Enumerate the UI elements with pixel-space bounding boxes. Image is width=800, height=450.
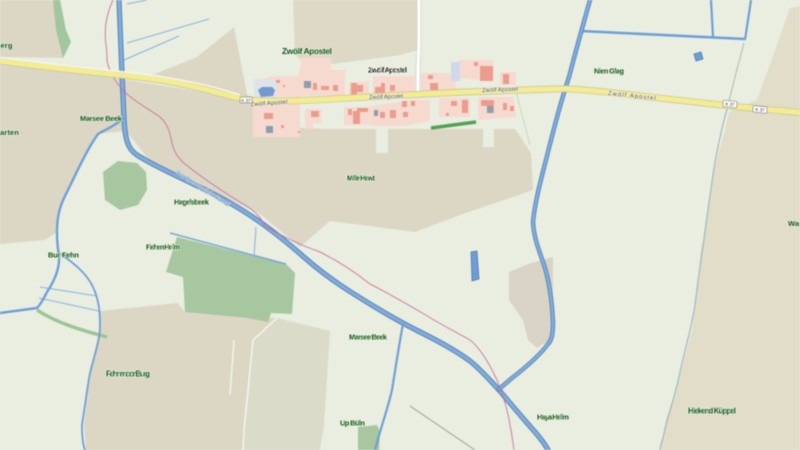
- svg-text:K 37: K 37: [725, 101, 735, 107]
- svg-text:Wass: Wass: [788, 219, 800, 228]
- svg-text:Nien Glag: Nien Glag: [594, 67, 624, 76]
- svg-text:Garten: Garten: [0, 128, 19, 137]
- svg-text:Mille Hewt: Mille Hewt: [347, 174, 376, 183]
- svg-text:K 37: K 37: [755, 107, 765, 113]
- svg-text:Zwölf Apostel: Zwölf Apostel: [369, 94, 403, 101]
- svg-text:Marsee Beek: Marsee Beek: [349, 333, 388, 342]
- svg-text:Zwölf Apostel: Zwölf Apostel: [282, 46, 332, 56]
- svg-text:Zwölf Apostel: Zwölf Apostel: [368, 66, 407, 75]
- svg-text:Hagelsbeek: Hagelsbeek: [174, 198, 210, 207]
- svg-text:Fehnmoor Burg: Fehnmoor Burg: [106, 370, 150, 379]
- svg-text:Zwölf Apostel: Zwölf Apostel: [482, 87, 518, 94]
- svg-text:Fiehen Hellm: Fiehen Hellm: [146, 243, 180, 252]
- svg-text:Hiekend Küppel: Hiekend Küppel: [688, 407, 736, 416]
- svg-text:Marsee Beek: Marsee Beek: [80, 114, 123, 123]
- svg-text:Haya Hellm: Haya Hellm: [537, 413, 569, 422]
- svg-text:Up Büln: Up Büln: [340, 419, 365, 428]
- svg-text:berg: berg: [0, 41, 13, 50]
- svg-text:K 37: K 37: [241, 98, 251, 103]
- svg-text:Bur Fehn: Bur Fehn: [48, 251, 79, 260]
